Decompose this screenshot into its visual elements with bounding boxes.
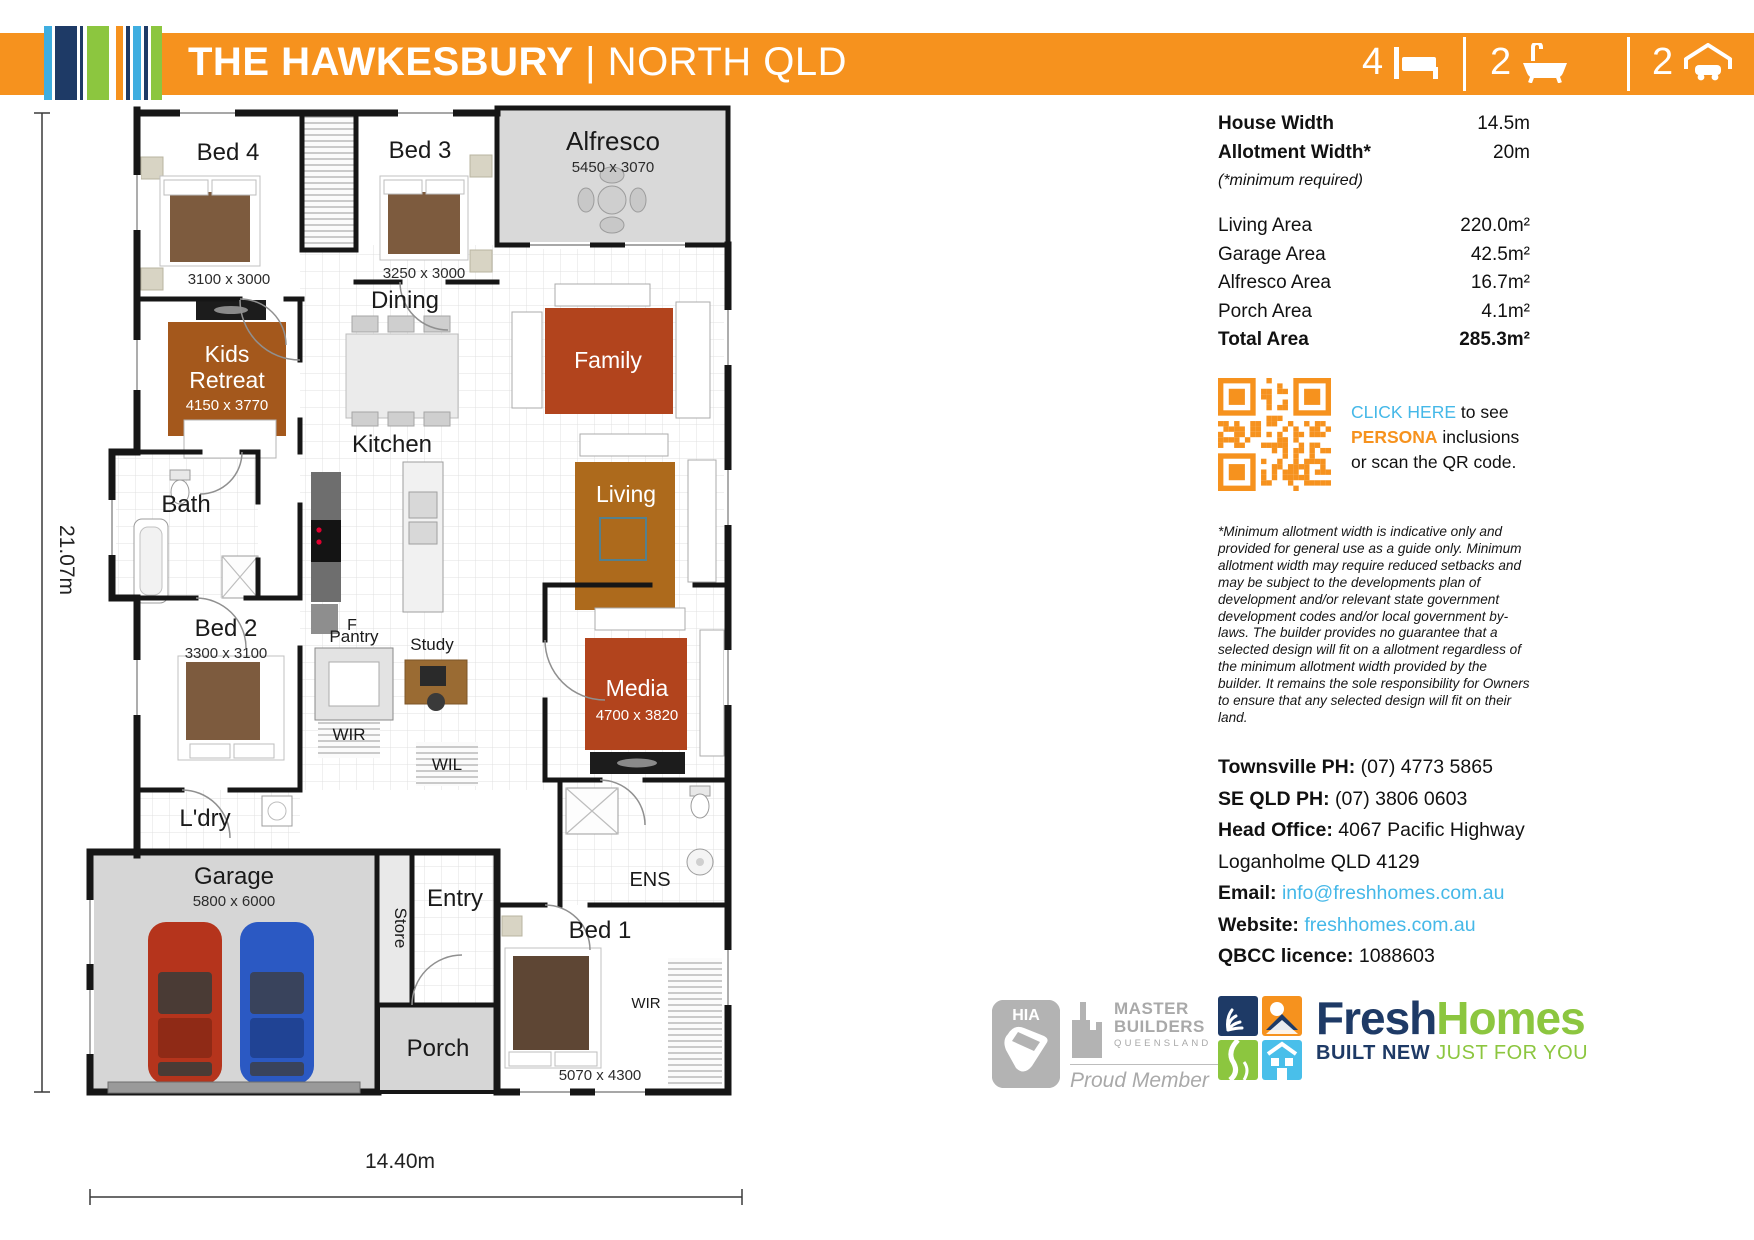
email-row: Email: info@freshhomes.com.au: [1218, 878, 1548, 910]
specs-table: House Width14.5m Allotment Width*20m (*m…: [1218, 110, 1530, 355]
tile-sun-mountain: [1262, 996, 1302, 1036]
svg-text:Entry: Entry: [427, 885, 483, 912]
height-dimension: 21.07m: [55, 525, 78, 595]
svg-text:Living: Living: [596, 481, 656, 507]
tile-plant: [1218, 996, 1258, 1036]
persona-label: PERSONA: [1351, 427, 1438, 447]
svg-text:WIR: WIR: [631, 995, 660, 1012]
stat-divider: [1463, 37, 1466, 91]
svg-text:Bed 1: Bed 1: [569, 917, 632, 944]
spec-row: House Width14.5m: [1218, 110, 1530, 139]
svg-text:Kitchen: Kitchen: [352, 431, 432, 458]
disclaimer-text: *Minimum allotment width is indicative o…: [1218, 524, 1532, 727]
spec-row: Porch Area4.1m²: [1218, 298, 1530, 327]
svg-text:F: F: [347, 617, 357, 634]
stat-bathrooms: 2: [1490, 41, 1569, 84]
spec-row: Living Area220.0m²: [1218, 212, 1530, 241]
svg-text:3250 x 3000: 3250 x 3000: [383, 265, 466, 282]
stat-divider: [1627, 37, 1630, 91]
click-here-link[interactable]: CLICK HERE: [1351, 402, 1456, 422]
email-link[interactable]: info@freshhomes.com.au: [1282, 882, 1504, 904]
bath-icon: [1521, 43, 1569, 83]
svg-text:Alfresco: Alfresco: [566, 126, 660, 156]
hia-logo: HIA: [988, 998, 1064, 1095]
svg-text:Garage: Garage: [194, 863, 274, 890]
master-builders-icon: [1070, 1000, 1104, 1058]
svg-text:Bed 4: Bed 4: [197, 139, 260, 166]
svg-text:WIR: WIR: [332, 725, 365, 744]
spec-row: Allotment Width*20m: [1218, 139, 1530, 168]
bed-icon: [1393, 45, 1439, 81]
qr-block: CLICK HERE to see PERSONA inclusions or …: [1218, 378, 1530, 491]
svg-text:HIA: HIA: [1012, 1007, 1040, 1024]
svg-text:L'dry: L'dry: [179, 805, 230, 832]
svg-text:4150 x 3770: 4150 x 3770: [186, 397, 269, 414]
phone-townsville: Townsville PH: (07) 4773 5865: [1218, 752, 1548, 784]
svg-text:5450 x 3070: 5450 x 3070: [572, 159, 655, 176]
svg-text:Kids: Kids: [205, 341, 250, 367]
svg-text:Family: Family: [574, 347, 642, 373]
head-office: Head Office: 4067 Pacific Highway: [1218, 815, 1548, 847]
master-builders-logo: MASTER BUILDERS QUEENSLAND Proud Member: [1070, 1000, 1220, 1093]
svg-text:Bath: Bath: [161, 491, 210, 518]
garage-car-icon: [1683, 43, 1733, 83]
tile-path: [1218, 1040, 1258, 1080]
spec-row: Garage Area42.5m²: [1218, 241, 1530, 270]
stat-garage: 2: [1652, 41, 1733, 84]
qbcc-row: QBCC licence: 1088603: [1218, 941, 1548, 973]
fresh-homes-tiles: [1218, 996, 1302, 1080]
tile-house: [1262, 1040, 1302, 1080]
stat-bedrooms: 4: [1362, 41, 1439, 84]
svg-text:Media: Media: [606, 675, 669, 701]
website-link[interactable]: freshhomes.com.au: [1304, 914, 1475, 936]
svg-text:ENS: ENS: [629, 869, 670, 891]
svg-text:5070 x 4300: 5070 x 4300: [559, 1067, 642, 1084]
fresh-homes-tagline: BUILT NEW JUST FOR YOU: [1316, 1042, 1588, 1065]
spec-row: Alfresco Area16.7m²: [1218, 269, 1530, 298]
qr-caption: CLICK HERE to see PERSONA inclusions or …: [1351, 378, 1519, 491]
website-row: Website: freshhomes.com.au: [1218, 910, 1548, 942]
qr-code[interactable]: [1218, 378, 1331, 491]
svg-text:Bed 3: Bed 3: [389, 137, 452, 164]
width-dimension: 14.40m: [365, 1150, 435, 1173]
svg-text:Study: Study: [410, 635, 454, 654]
spec-row-total: Total Area285.3m²: [1218, 326, 1530, 355]
svg-text:WIL: WIL: [432, 755, 462, 774]
floor-plan: 21.07m 14.40m: [0, 0, 780, 1240]
head-office-line2: Loganholme QLD 4129: [1218, 847, 1548, 879]
brochure-page: THE HAWKESBURY | NORTH QLD 4 2 2: [0, 0, 1754, 1240]
svg-text:Dining: Dining: [371, 287, 439, 314]
phone-seqld: SE QLD PH: (07) 3806 0603: [1218, 784, 1548, 816]
spec-note: (*minimum required): [1218, 167, 1530, 195]
svg-text:Bed 2: Bed 2: [195, 615, 258, 642]
svg-text:Store: Store: [391, 908, 410, 949]
fresh-homes-logo: FreshHomes BUILT NEW JUST FOR YOU: [1218, 996, 1588, 1080]
svg-text:3100 x 3000: 3100 x 3000: [188, 271, 271, 288]
svg-text:4700 x 3820: 4700 x 3820: [596, 707, 679, 724]
svg-text:Retreat: Retreat: [189, 367, 265, 393]
fresh-homes-wordmark: FreshHomes: [1316, 996, 1588, 1040]
svg-text:Porch: Porch: [407, 1035, 470, 1062]
svg-text:5800 x 6000: 5800 x 6000: [193, 893, 276, 910]
contact-block: Townsville PH: (07) 4773 5865 SE QLD PH:…: [1218, 752, 1548, 973]
svg-text:3300 x 3100: 3300 x 3100: [185, 645, 268, 662]
